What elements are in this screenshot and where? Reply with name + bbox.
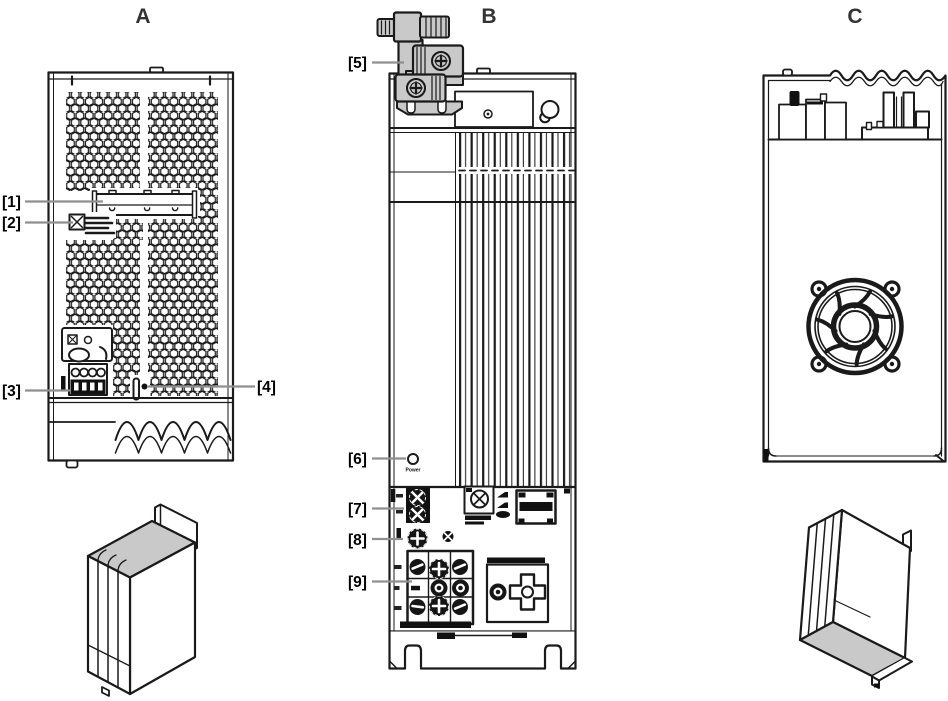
cable-knockout-plate — [487, 558, 548, 623]
small-screw — [443, 531, 454, 542]
callout-6-label: [6] — [348, 451, 367, 468]
view-labels: A B C — [135, 5, 862, 28]
callout-9-label: [9] — [348, 574, 367, 591]
callout-7-label: [7] — [348, 501, 367, 518]
grounding-clamp — [66, 212, 116, 238]
callout-1-label: [1] — [2, 194, 21, 211]
view-a-isometric — [88, 505, 197, 697]
view-c-label: C — [847, 5, 862, 28]
callout-8-label: [8] — [348, 532, 367, 549]
view-b-label: B — [481, 5, 496, 28]
technical-line-drawing: Power — [0, 0, 948, 701]
callout-2-label: [2] — [2, 215, 21, 232]
bottom-flange — [390, 632, 576, 669]
view-c-isometric — [800, 510, 912, 688]
view-a-label: A — [135, 5, 150, 28]
callout-3-label: [3] — [2, 383, 21, 400]
callout-4-label: [4] — [257, 379, 276, 396]
ribbed-face — [88, 556, 130, 694]
switch-housing — [62, 328, 112, 362]
foot — [102, 687, 109, 696]
option-connector — [517, 491, 556, 524]
ground-screw — [408, 529, 427, 548]
view-a-front-panel — [49, 68, 234, 468]
power-led-label: Power — [405, 468, 420, 474]
supply-terminals — [406, 488, 430, 524]
view-b-front-panel: Power — [378, 13, 576, 669]
potentiometer — [465, 487, 494, 525]
callout-5-label: [5] — [348, 55, 367, 72]
view-c-rear-panel — [764, 70, 946, 463]
device-views-figure: Power — [0, 0, 948, 701]
